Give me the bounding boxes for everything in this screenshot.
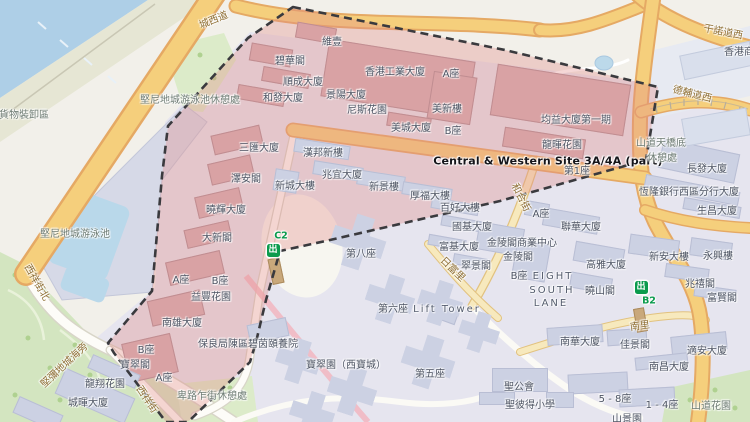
map-canvas[interactable]: 城西道干諾道西香港商德輔道西貨物裝卸區堅尼地城游泳池休憩處堅尼地城游泳池西祥街北… — [0, 0, 750, 422]
mtr-exit-code: C2 — [274, 231, 288, 241]
mtr-exit-code: B2 — [642, 296, 656, 306]
mtr-exit-icon: 出 — [267, 244, 280, 257]
mtr-exit-icon: 出 — [635, 281, 648, 294]
mtr-exits-layer: 出C2出B2 — [0, 0, 750, 422]
